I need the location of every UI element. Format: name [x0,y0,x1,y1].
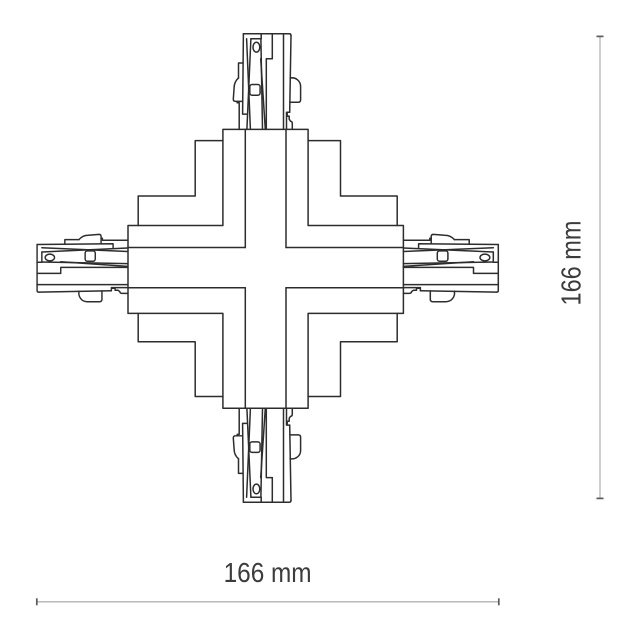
svg-text:166 mm: 166 mm [224,557,312,588]
svg-text:166 mm: 166 mm [556,221,587,306]
